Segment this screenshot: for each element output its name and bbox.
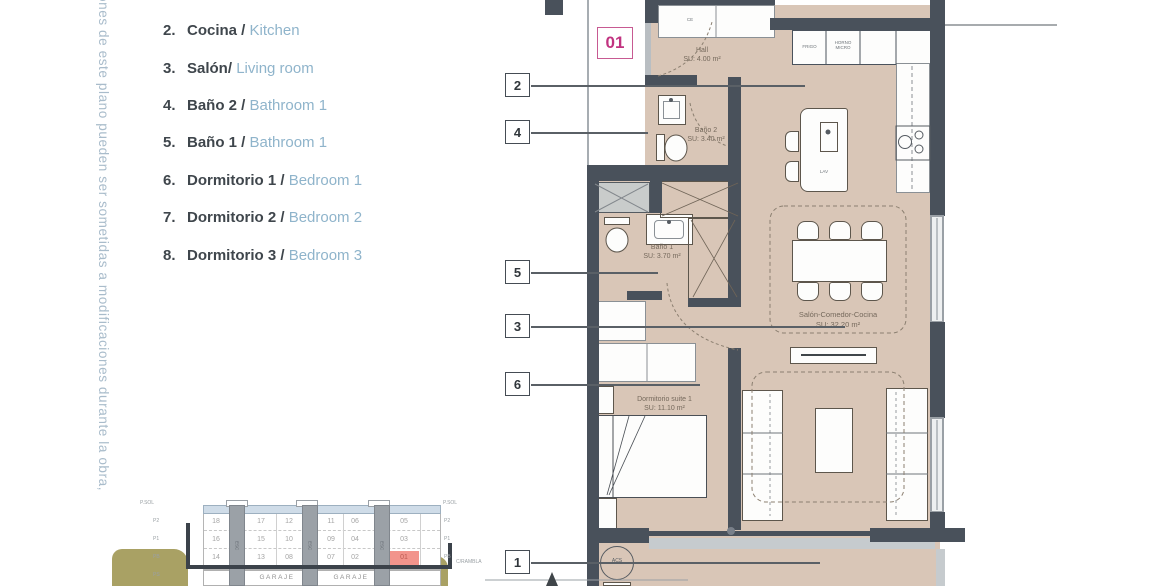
callout-leader [531,272,658,274]
legend-name-es: Cocina / [187,22,250,39]
utility-box [603,582,631,586]
section-divider [343,514,344,566]
sofa-right [886,388,928,521]
unit-cell: 04 [345,536,365,543]
unit-cell: 18 [206,518,226,525]
room-legend: 2.Cocina / Kitchen 3.Salón/ Living room … [163,12,463,274]
callout-badge-1: 1 [505,550,530,574]
dining-table [792,240,887,282]
unit-cell: 13 [251,554,271,561]
legend-item: 6.Dormitorio 1 / Bedroom 1 [163,162,463,199]
legend-name-en: Bedroom 1 [289,172,362,189]
legend-name-es: Dormitorio 2 / [187,209,289,226]
stair-core-label: ESC [380,541,385,550]
unit-cell: 07 [321,554,341,561]
wall [587,528,649,543]
legend-name-es: Salón/ [187,60,236,77]
floor-label: P2 [153,518,159,524]
sofa-left [742,390,783,521]
wall [728,77,741,307]
room-area: SU: 32.20 m² [778,320,898,330]
dining-chair [829,282,851,301]
legend-item: 8.Dormitorio 3 / Bedroom 3 [163,236,463,273]
room-label-bathroom1: Baño 1 SU: 3.70 m² [636,243,688,261]
bed [593,415,707,498]
legend-item: 5.Baño 1 / Bathroom 1 [163,124,463,161]
legend-name-es: Dormitorio 1 / [187,172,289,189]
appliance-label-oven: HORNO MICRO [828,40,858,51]
legend-name-en: Kitchen [250,22,300,39]
room-label-bathroom2: Baño 2 SU: 3.40 m² [680,126,732,144]
wall [627,291,662,300]
unit-number-badge: 01 [597,27,633,59]
island-sink [820,122,838,152]
legend-number: 3. [163,60,187,77]
window [930,215,944,323]
callout-leader [531,562,820,564]
callout-leader [531,85,805,87]
legend-number: 5. [163,134,187,151]
wall [649,531,873,536]
floorplan-page: ones de este plano pueden ser sometidas … [0,0,1170,586]
dining-chair [861,282,883,301]
room-label-hall: Hall SU: 4.00 m² [672,46,732,64]
callout-leader [531,384,700,386]
legend-name-en: Bathroom 1 [250,134,328,151]
wall [870,528,965,542]
legend-number: 7. [163,209,187,226]
legend-name-en: Bedroom 2 [289,209,362,226]
legend-item: 3.Salón/ Living room [163,49,463,86]
terrace-right-railing [936,549,945,586]
room-name: Baño 2 [680,126,732,135]
unit-cell-highlighted: 01 [394,554,414,561]
wall [545,0,563,15]
entry-door-frame [645,23,651,75]
shower-tray [593,182,650,213]
legend-item: 4.Baño 2 / Bathroom 1 [163,87,463,124]
closet [595,301,646,341]
section-divider [276,514,277,566]
legend-number: 8. [163,247,187,264]
wall [688,298,740,307]
floor-label: P1 [153,536,159,542]
callout-badge-5: 5 [505,260,530,284]
unit-cell: 09 [321,536,341,543]
legend-name-es: Baño 2 / [187,97,250,114]
garage-label: GARAJE [321,574,381,581]
ground-bank-left [112,549,188,586]
garage-label: GARAJE [247,574,307,581]
section-label-psol-left: P.SOL [140,500,154,506]
ground-post [186,523,190,569]
unit-cell: 05 [394,518,414,525]
window [930,417,944,513]
legend-name-en: Bathroom 1 [250,97,328,114]
bathroom2-toilet-tank [656,134,665,161]
room-area: SU: 3.40 m² [680,135,732,144]
floor-label: PS [153,572,160,578]
legend-number: 4. [163,97,187,114]
room-name: Baño 1 [636,243,688,252]
dining-chair [797,221,819,240]
callout-leader [531,326,845,328]
room-label-dormitorio: Dormitorio suite 1 SU: 11.10 m² [612,395,717,413]
island-stool [785,161,799,182]
wall [587,165,599,586]
legend-name-es: Dormitorio 3 / [187,247,289,264]
stair-core-label: ESC [235,541,240,550]
closet [598,343,696,382]
ground-line [186,565,452,569]
entry-closet-label: CE [676,17,704,22]
unit-cell: 10 [279,536,299,543]
floor-label: P1 [444,536,450,542]
wall [645,75,697,85]
dining-chair [861,221,883,240]
bathroom2-sink-basin [663,101,680,119]
disclaimer-vertical-text: ones de este plano pueden ser sometidas … [96,0,111,586]
legend-name-es: Baño 1 / [187,134,250,151]
stair-core-label: ESC [308,541,313,550]
wall [587,165,730,181]
wall [658,0,775,5]
island-stool [785,131,799,152]
tv-cabinet [790,347,877,364]
unit-cell: 14 [206,554,226,561]
legend-name-en: Bedroom 3 [289,247,362,264]
unit-cell: 02 [345,554,365,561]
callout-badge-4: 4 [505,120,530,144]
legend-item: 7.Dormitorio 2 / Bedroom 2 [163,199,463,236]
room-name: Hall [672,46,732,55]
room-area: SU: 11.10 m² [612,404,717,413]
callout-badge-2: 2 [505,73,530,97]
bathroom1-sink-basin [654,220,684,239]
north-arrow [546,572,558,586]
wall [930,322,945,418]
floor-label: PB [153,554,160,560]
unit-cell: 11 [321,518,341,525]
callout-leader [531,132,648,134]
wall [728,348,741,530]
floor-label: PB [444,554,451,560]
legend-number: 6. [163,172,187,189]
unit-cell: 15 [251,536,271,543]
dining-chair [829,221,851,240]
room-name: Dormitorio suite 1 [612,395,717,404]
appliance-label-fridge: FRIGO [794,44,825,49]
legend-item: 2.Cocina / Kitchen [163,12,463,49]
wall [650,181,662,213]
unit-cell: 06 [345,518,365,525]
wall [645,0,658,23]
section-label-psol-right: P.SOL [443,500,457,506]
unit-cell: 16 [206,536,226,543]
bathroom1-toilet-tank [604,217,630,225]
room-area: SU: 4.00 m² [672,55,732,64]
wall [930,0,945,216]
island-sink-label: LAV [812,169,836,174]
unit-cell: 08 [279,554,299,561]
room-name: Salón-Comedor-Cocina [778,310,898,320]
unit-cell: 12 [279,518,299,525]
building-edge-line [587,0,589,165]
section-divider [420,514,421,566]
callout-badge-6: 6 [505,372,530,396]
floor-label: P2 [444,518,450,524]
unit-cell: 03 [394,536,414,543]
room-area: SU: 3.70 m² [636,252,688,261]
unit-cell: 17 [251,518,271,525]
legend-name-en: Living room [236,60,314,77]
stair-core: ESC [229,505,245,586]
legend-number: 2. [163,22,187,39]
street-label: C/RAMBLA [456,559,482,565]
coffee-table [815,408,853,473]
kitchen-counter-right [896,63,930,193]
wall [770,18,932,30]
dining-chair [797,282,819,301]
callout-badge-3: 3 [505,314,530,338]
